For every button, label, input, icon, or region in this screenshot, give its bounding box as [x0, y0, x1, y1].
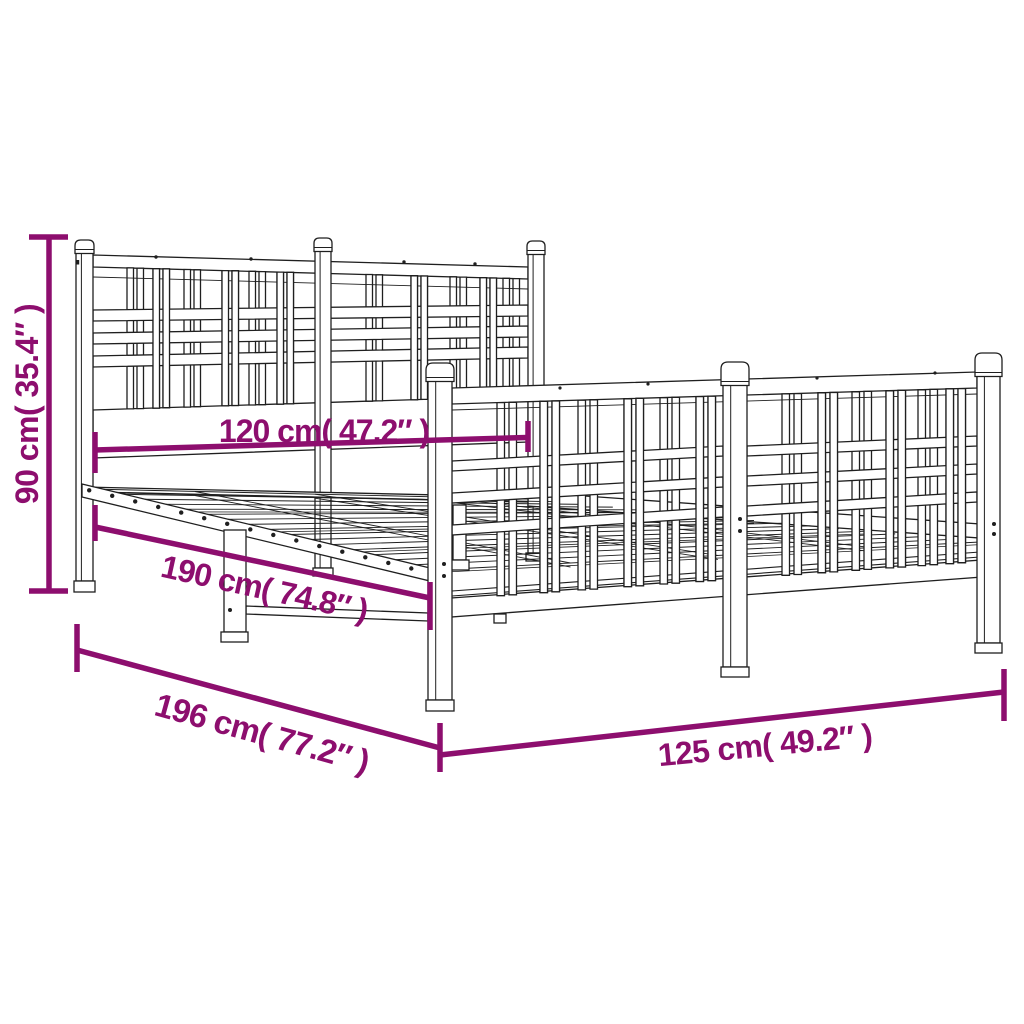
- svg-text:90 cm( 35.4″ ): 90 cm( 35.4″ ): [9, 304, 45, 504]
